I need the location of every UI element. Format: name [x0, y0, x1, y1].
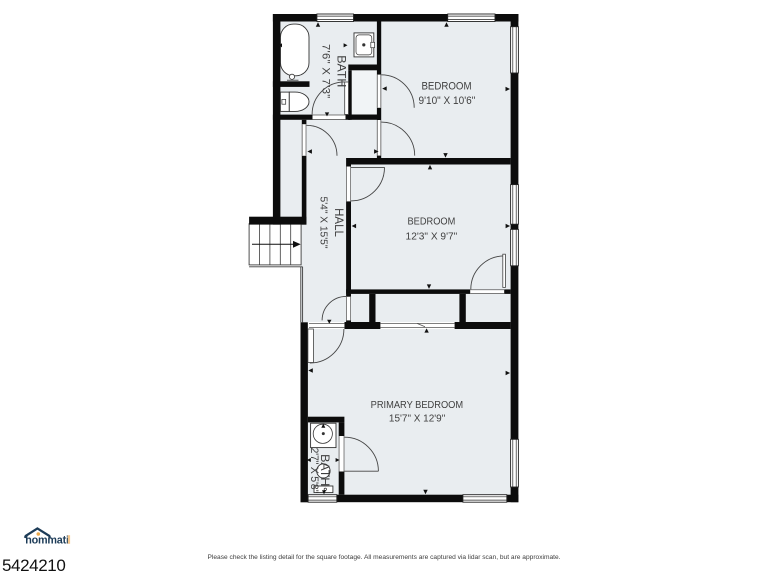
svg-text:5424210: 5424210	[2, 556, 65, 575]
svg-text:9'10" X 10'6": 9'10" X 10'6"	[419, 95, 476, 107]
svg-text:2'7" X 5'8": 2'7" X 5'8"	[308, 448, 320, 494]
svg-text:PRIMARY BEDROOM: PRIMARY BEDROOM	[371, 400, 464, 411]
svg-text:7'6" X 7'3": 7'6" X 7'3"	[320, 44, 332, 99]
svg-text:Please check the listing detai: Please check the listing detail for the …	[208, 554, 561, 561]
svg-text:HALL: HALL	[332, 208, 344, 237]
svg-text:BEDROOM: BEDROOM	[408, 216, 456, 227]
svg-text:BATH: BATH	[335, 55, 349, 87]
svg-text:5'4" X 15'5": 5'4" X 15'5"	[317, 197, 328, 249]
svg-text:hommati: hommati	[25, 535, 69, 547]
svg-text:BEDROOM: BEDROOM	[421, 81, 471, 93]
svg-text:15'7" X 12'9": 15'7" X 12'9"	[389, 413, 446, 424]
svg-text:12'3" X 9'7": 12'3" X 9'7"	[406, 231, 458, 242]
